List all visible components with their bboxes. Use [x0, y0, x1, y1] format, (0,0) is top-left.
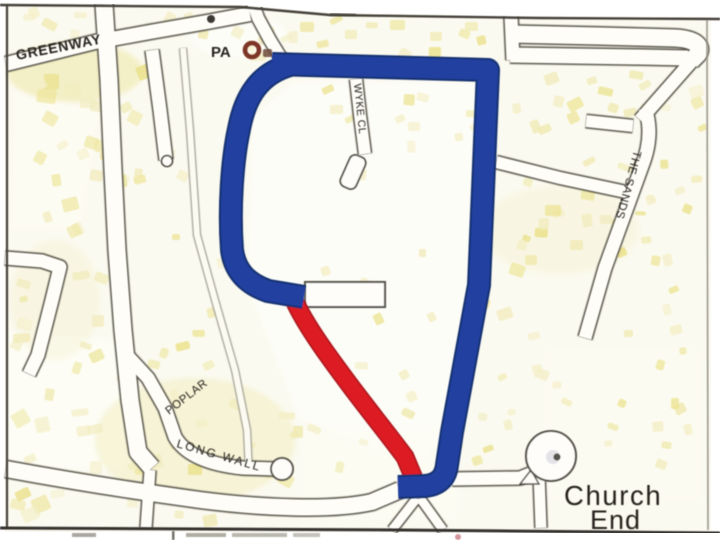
svg-text:PA: PA	[211, 44, 231, 61]
